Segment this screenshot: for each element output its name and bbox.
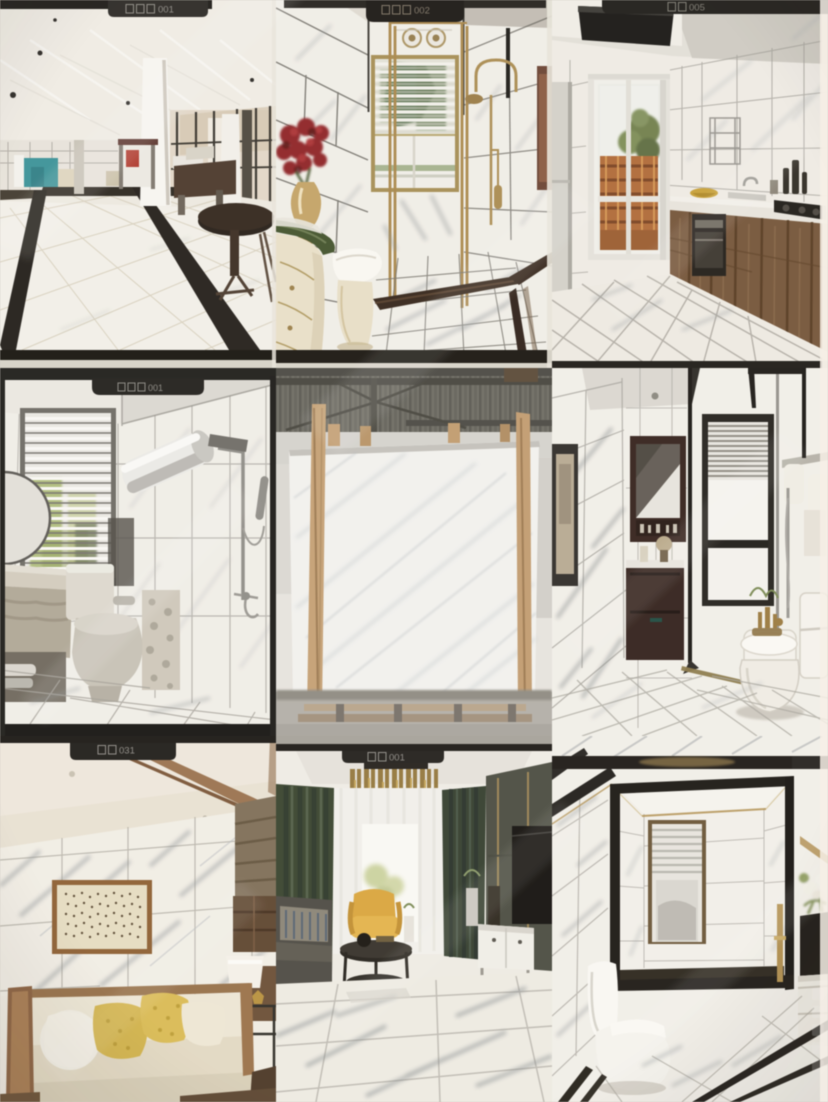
svg-text:001: 001 bbox=[158, 5, 174, 16]
svg-text:005: 005 bbox=[689, 3, 705, 14]
svg-text:001: 001 bbox=[389, 753, 405, 764]
svg-text:001: 001 bbox=[148, 383, 163, 393]
svg-text:031: 031 bbox=[119, 746, 135, 757]
svg-text:002: 002 bbox=[414, 6, 430, 17]
